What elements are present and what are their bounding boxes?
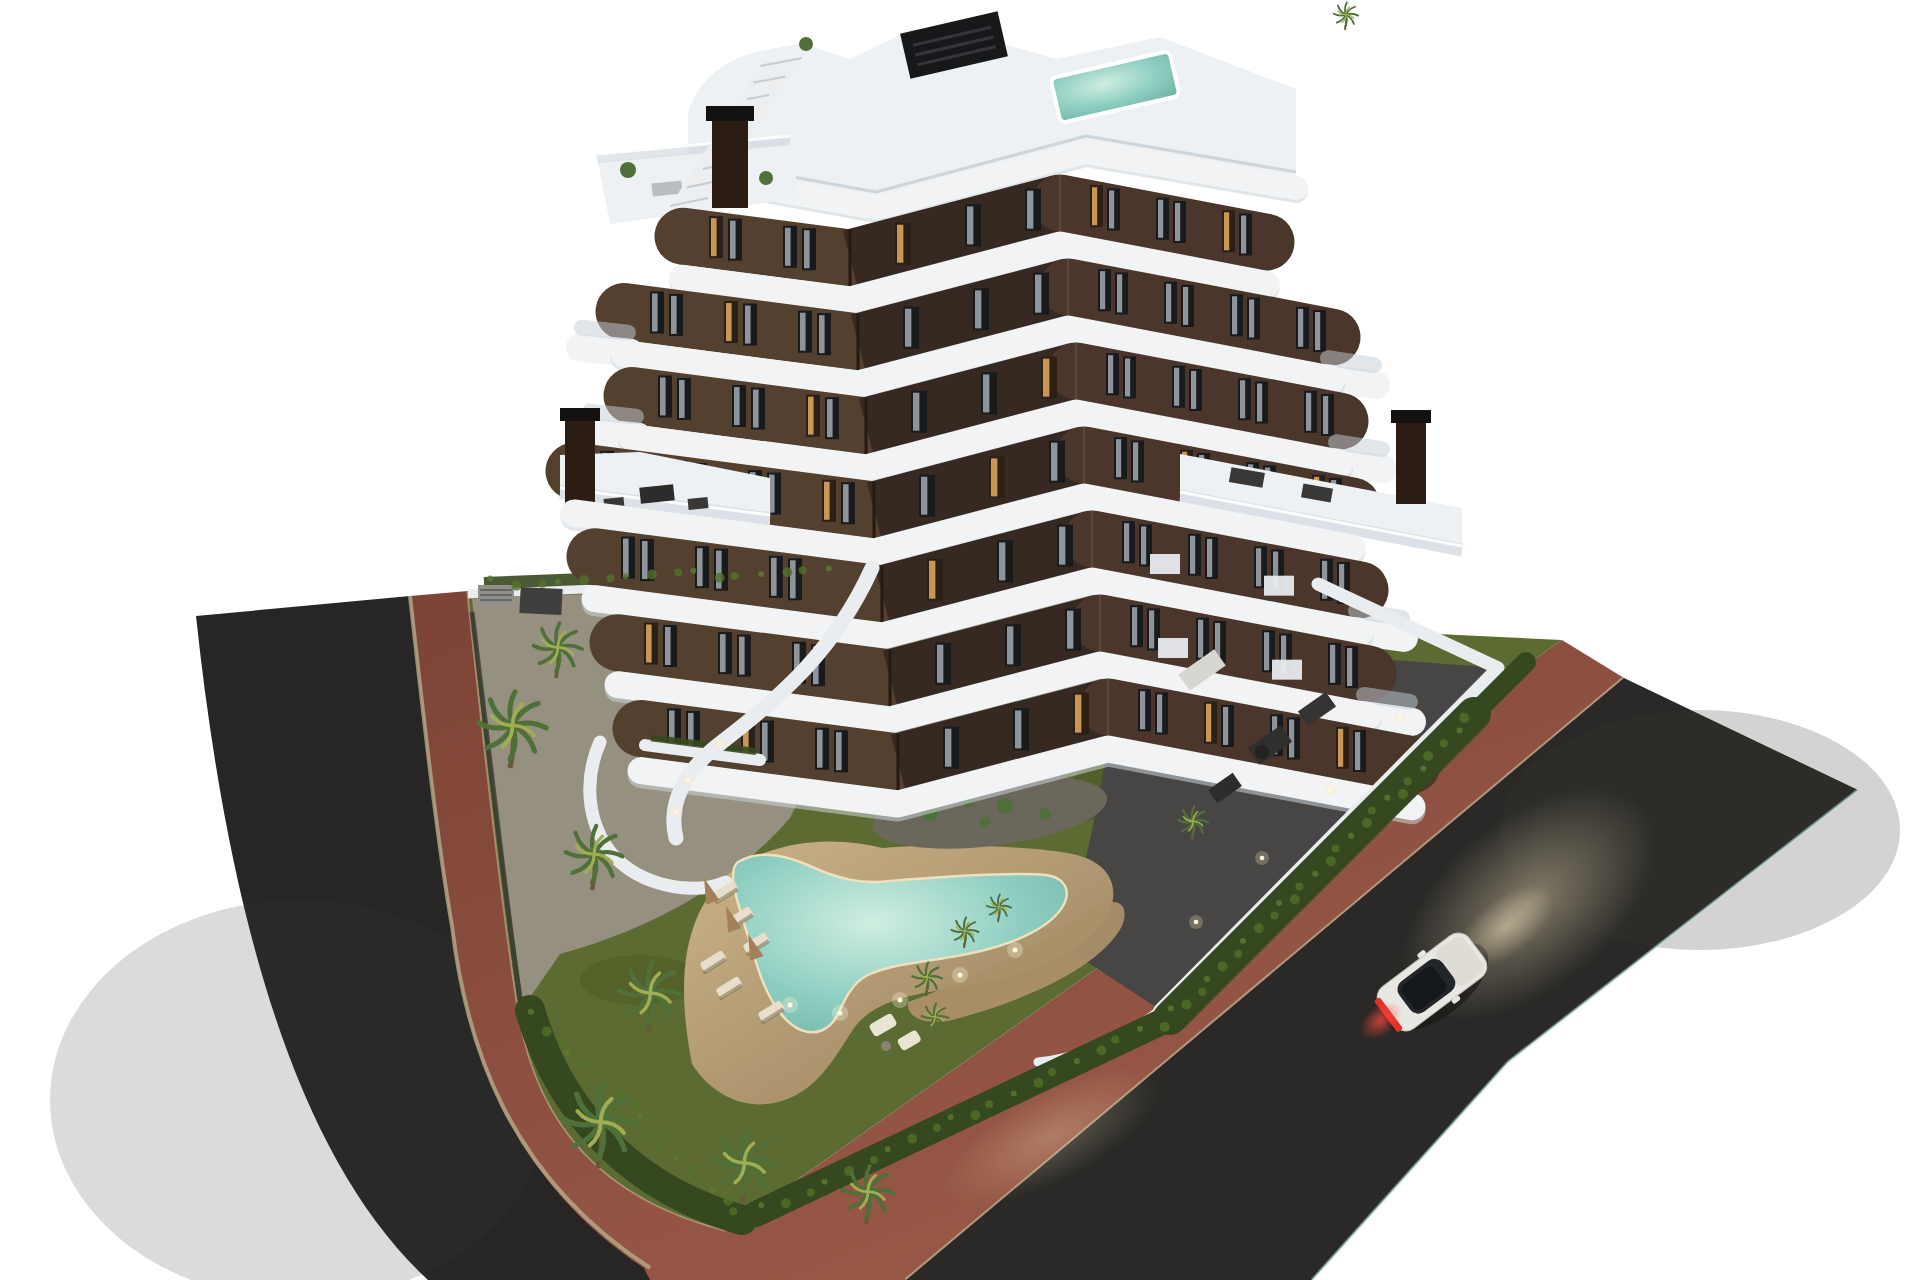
window-curtain <box>1092 187 1097 225</box>
window-curtain <box>745 306 751 344</box>
hedge-leaf <box>1182 999 1192 1009</box>
window-curtain <box>937 645 943 683</box>
hedge-leaf <box>782 567 792 577</box>
window-curtain <box>1124 523 1129 561</box>
window-curtain <box>1141 526 1146 564</box>
garden-table <box>881 1041 891 1051</box>
hedge-leaf <box>1423 751 1433 761</box>
window-curtain <box>999 542 1005 580</box>
window-curtain <box>1240 380 1245 418</box>
hedge-leaf <box>1332 844 1340 852</box>
hedge-leaf <box>1384 795 1390 801</box>
window-curtain <box>1125 358 1130 396</box>
hedge-leaf <box>1111 1036 1119 1044</box>
window-curtain <box>739 637 745 675</box>
window-curtain <box>1249 300 1254 338</box>
hedge-leaf <box>558 1038 566 1046</box>
hedge-leaf <box>799 566 807 574</box>
hedge-leaf <box>1218 961 1228 971</box>
window-curtain <box>665 627 671 665</box>
window-curtain <box>1330 645 1335 683</box>
window-curtain <box>1183 287 1188 325</box>
window-curtain <box>1232 296 1237 334</box>
hedge-leaf <box>723 1196 733 1206</box>
window-curtain <box>913 393 919 431</box>
wall-light <box>1260 856 1265 861</box>
balcony-right-glass <box>1364 695 1410 702</box>
wall-light <box>1398 716 1403 721</box>
window-curtain <box>1206 704 1211 742</box>
hedge-leaf <box>1404 777 1412 785</box>
hedge-leaf <box>693 1175 701 1183</box>
hedge-leaf <box>690 568 696 574</box>
terrace-chair <box>688 497 709 510</box>
chimney-cap <box>1391 410 1431 423</box>
pool-light <box>1013 948 1018 953</box>
window-curtain <box>1241 216 1246 254</box>
window-curtain <box>726 303 732 341</box>
window-curtain <box>785 228 791 266</box>
island-shrub <box>997 798 1013 814</box>
window-curtain <box>1207 539 1212 577</box>
window-curtain <box>652 293 658 331</box>
window-curtain <box>905 309 911 347</box>
hedge-leaf <box>528 1009 534 1015</box>
hedge-leaf <box>1204 976 1210 982</box>
hedge-leaf <box>1240 938 1246 944</box>
hedge-leaf <box>578 1059 588 1069</box>
patio-table <box>1255 745 1269 759</box>
wall-light <box>718 742 723 747</box>
window-curtain <box>1027 191 1033 229</box>
hedge-leaf <box>647 569 657 579</box>
hedge-leaf <box>970 1110 980 1120</box>
hedge-leaf <box>1440 739 1448 747</box>
hedge-leaf <box>1254 923 1264 933</box>
window-curtain <box>991 458 997 496</box>
window-curtain <box>808 397 814 435</box>
window-curtain <box>975 290 981 328</box>
window-curtain <box>929 561 935 599</box>
window-curtain <box>836 732 842 770</box>
window-curtain <box>1157 694 1162 732</box>
hedge-leaf <box>555 579 561 585</box>
pool-light <box>958 973 963 978</box>
hedge-leaf <box>651 1132 661 1142</box>
chimney <box>565 415 595 503</box>
window-curtain <box>1223 707 1228 745</box>
window-curtain <box>1108 355 1113 393</box>
window-curtain <box>967 206 973 244</box>
hedge-leaf <box>631 1102 639 1110</box>
hedge-leaf <box>948 1114 954 1120</box>
chimney <box>712 114 748 208</box>
hedge-leaf <box>1270 912 1278 920</box>
chimney-cap <box>706 106 754 121</box>
hedge-leaf <box>731 572 739 580</box>
hedge-leaf <box>1234 950 1242 958</box>
hedge-leaf <box>1348 833 1354 839</box>
window-curtain <box>1224 212 1229 250</box>
chimney <box>1396 418 1426 504</box>
facade-wall-front <box>683 236 850 258</box>
hedge-leaf <box>1312 871 1318 877</box>
window-curtain <box>800 313 806 351</box>
hedge-leaf <box>1033 1078 1043 1088</box>
window-curtain <box>824 482 830 520</box>
hedge-leaf <box>870 1156 878 1164</box>
window-curtain <box>897 225 903 263</box>
balcony-planter-box <box>1264 576 1294 596</box>
hedge-leaf <box>1368 806 1376 814</box>
hedge-leaf <box>1048 1068 1056 1076</box>
roof-plant <box>620 162 636 178</box>
hedge-leaf <box>1290 894 1300 904</box>
window-curtain <box>697 548 703 586</box>
hedge-leaf <box>758 571 764 577</box>
window-curtain <box>660 377 666 415</box>
window-curtain <box>1190 536 1195 574</box>
hedge-leaf <box>985 1100 993 1108</box>
hedge-leaf <box>885 1146 891 1152</box>
window-curtain <box>1059 527 1065 565</box>
hedge-leaf <box>623 573 629 579</box>
balcony-right-glass <box>1328 358 1374 365</box>
window-curtain <box>642 541 648 579</box>
window-curtain <box>1338 729 1343 767</box>
hedge-leaf <box>821 1179 827 1185</box>
window-curtain <box>1298 309 1303 347</box>
window-curtain <box>1347 648 1352 686</box>
window-curtain <box>1051 443 1057 481</box>
window-curtain <box>1323 396 1328 434</box>
hedge-leaf <box>511 581 521 591</box>
window-curtain <box>1117 274 1122 312</box>
window-curtain <box>1100 271 1105 309</box>
roof-plant <box>759 171 773 185</box>
window-curtain <box>1166 284 1171 322</box>
hedge-leaf <box>1074 1058 1080 1064</box>
window-curtain <box>1158 200 1163 238</box>
hedge-leaf <box>687 1164 697 1174</box>
window-curtain <box>790 560 796 598</box>
window-curtain <box>1075 695 1081 733</box>
window-curtain <box>623 539 629 577</box>
wall-light <box>686 778 691 783</box>
hedge-leaf <box>1160 1022 1170 1032</box>
hedge-leaf <box>1456 728 1462 734</box>
window-curtain <box>945 729 951 767</box>
window-curtain <box>819 315 825 353</box>
hedge-leaf <box>1137 1026 1143 1032</box>
hedge-leaf <box>729 1207 737 1215</box>
hedge-leaf <box>487 576 493 582</box>
window-curtain <box>1256 548 1261 586</box>
window-curtain <box>983 374 989 412</box>
window-curtain <box>679 380 685 418</box>
architectural-render <box>0 0 1920 1280</box>
balcony-planter-box <box>1150 554 1180 574</box>
hedge-leaf <box>1295 883 1303 891</box>
balcony-planter-box <box>1272 660 1302 680</box>
hedge-leaf <box>1459 713 1469 723</box>
window-curtain <box>646 625 652 663</box>
hedge-leaf <box>826 565 832 571</box>
hedge-leaf <box>1398 789 1408 799</box>
balcony-planter-box <box>1158 638 1188 658</box>
window-curtain <box>1067 611 1073 649</box>
hedge-leaf <box>606 574 614 582</box>
window-curtain <box>734 387 740 425</box>
wall-light <box>1328 788 1333 793</box>
hedge-leaf <box>542 1027 552 1037</box>
window-curtain <box>1257 384 1262 422</box>
window-curtain <box>817 730 823 768</box>
window-curtain <box>1043 359 1049 397</box>
window-curtain <box>804 230 810 268</box>
hedge-leaf <box>579 575 589 585</box>
window-curtain <box>1149 610 1154 648</box>
wall-light <box>1194 920 1199 925</box>
island-shrub <box>1039 808 1051 820</box>
chimney-cap <box>560 408 600 421</box>
window-curtain <box>1355 732 1360 770</box>
pool-light <box>898 998 903 1003</box>
hedge-leaf <box>907 1134 917 1144</box>
hedge-leaf <box>637 1114 643 1120</box>
hedge-leaf <box>1097 1045 1107 1055</box>
entrance-gate <box>519 587 562 615</box>
window-curtain <box>1198 620 1203 658</box>
window-curtain <box>1315 312 1320 350</box>
window-curtain <box>1133 442 1138 480</box>
hedge-leaf <box>1276 900 1282 906</box>
lawn-shade <box>580 955 700 1005</box>
window-curtain <box>1140 691 1145 729</box>
hedge-leaf <box>1362 818 1372 828</box>
hedge-leaf <box>674 569 682 577</box>
window-curtain <box>1116 439 1121 477</box>
window-curtain <box>711 218 717 256</box>
hedge-leaf <box>595 1070 603 1078</box>
hedge-leaf <box>1198 988 1206 996</box>
pool-light <box>838 1011 843 1016</box>
window-curtain <box>671 296 677 334</box>
window-curtain <box>843 484 849 522</box>
hedge-leaf <box>1168 1005 1174 1011</box>
wall-light <box>674 810 679 815</box>
hedge-leaf <box>1011 1091 1017 1097</box>
window-curtain <box>753 390 759 428</box>
window-curtain <box>827 399 833 437</box>
window-curtain <box>921 477 927 515</box>
window-curtain <box>1175 203 1180 241</box>
window-curtain <box>1306 393 1311 431</box>
hedge-leaf <box>656 1143 664 1151</box>
hedge-leaf <box>710 1187 716 1193</box>
window-curtain <box>1174 368 1179 406</box>
pool-light <box>788 1003 793 1008</box>
window-curtain <box>1191 371 1196 409</box>
window-curtain <box>1035 275 1041 313</box>
hedge-leaf <box>933 1124 941 1132</box>
facade-wall-front <box>618 643 890 678</box>
window-curtain <box>1109 190 1114 228</box>
window-curtain <box>771 558 777 596</box>
island-shrub <box>980 817 990 827</box>
balcony-right-glass <box>1336 442 1382 449</box>
hedge-leaf <box>564 1050 570 1056</box>
render-canvas <box>0 0 1920 1280</box>
hedge-leaf <box>539 580 547 588</box>
hedge-leaf <box>673 1155 679 1161</box>
hedge-leaf <box>807 1189 815 1197</box>
balcony-left-glass <box>582 328 628 333</box>
window-curtain <box>716 551 722 589</box>
window-curtain <box>730 221 736 259</box>
roof-plant <box>799 37 813 51</box>
window-curtain <box>1007 626 1013 664</box>
hedge-leaf <box>1326 856 1336 866</box>
window-curtain <box>1015 710 1021 748</box>
hedge-leaf <box>715 573 725 583</box>
hedge-leaf <box>781 1198 791 1208</box>
hedge-leaf <box>1420 766 1426 772</box>
hedge-leaf <box>758 1202 764 1208</box>
window-curtain <box>1264 632 1269 670</box>
window-curtain <box>1132 607 1137 645</box>
window-curtain <box>720 634 726 672</box>
